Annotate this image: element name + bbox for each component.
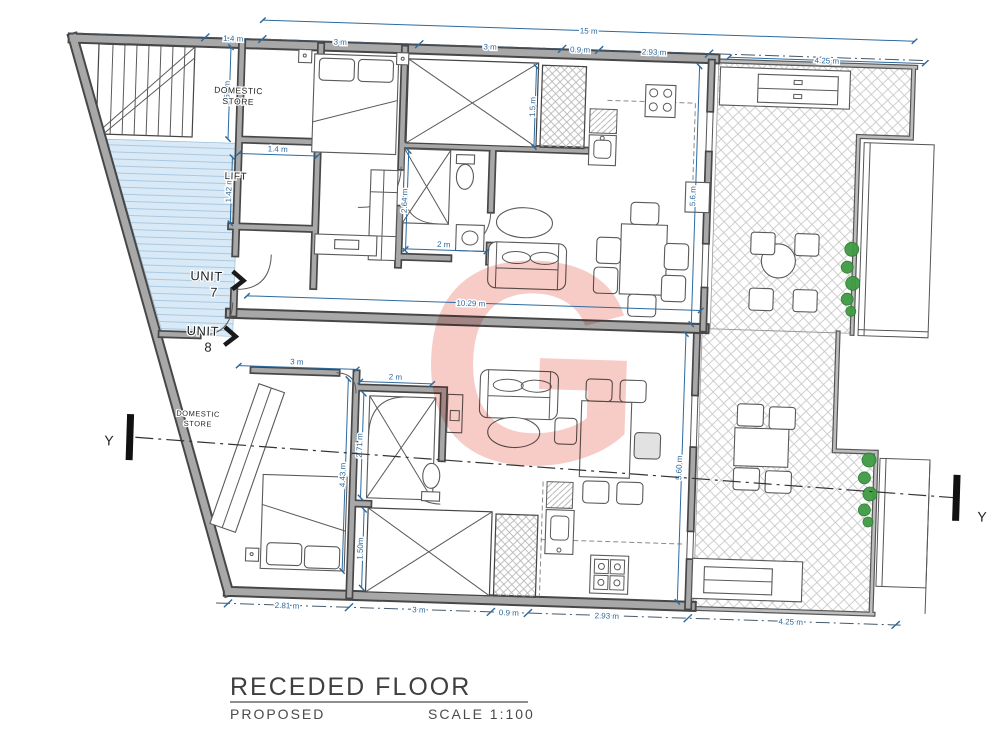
label-unit7-number: 7	[210, 285, 218, 300]
dim-2-93m-top: 2.93 m	[642, 47, 667, 57]
label-domestic-store-u7-line2: STORE	[222, 96, 254, 107]
dim-bed2-depth: 4.43 m	[338, 462, 348, 487]
dim-u8-depth: 5.60 m	[674, 455, 684, 480]
label-unit8-number: 8	[204, 339, 212, 354]
section-marker-right: Y	[977, 509, 988, 525]
dim-bath1-width: 2 m	[437, 240, 451, 249]
dim-shaft-u7: 1.5 m	[528, 96, 538, 117]
label-unit8: UNIT	[186, 323, 219, 339]
label-unit7: UNIT	[190, 268, 223, 284]
dim-3m-bottom: 3 m	[412, 605, 426, 614]
dim-shaft-u8: 1.50m	[356, 537, 366, 560]
drawing-title: RECEDED FLOOR	[230, 673, 471, 701]
floor-plan-svg: G 15 m 1.4 m 3 m 3 m 0.9 m 2.93 m 4.25 m	[0, 0, 1000, 750]
dim-living2-width: 2 m	[389, 372, 403, 381]
label-domestic-store-u7-line1: DOMESTIC	[214, 85, 263, 97]
dim-2-93m-bottom: 2.93 m	[594, 611, 619, 621]
dim-bath1-depth: 2.64 m	[400, 188, 410, 213]
dim-4-25m-bottom: 4.25 m	[778, 617, 803, 627]
plan-group: G 15 m 1.4 m 3 m 3 m 0.9 m 2.93 m 4.25 m	[51, 10, 1000, 633]
dim-lift-width: 1.4 m	[268, 144, 289, 154]
dim-3m-top-b: 3 m	[483, 42, 497, 51]
dim-party-wall: 10.29 m	[456, 299, 486, 309]
label-domestic-store-u8-line1: DOMESTIC	[176, 409, 220, 419]
dim-3m-top-a: 3 m	[333, 37, 347, 46]
staircase	[96, 44, 195, 137]
title-block: RECEDED FLOOR PROPOSED SCALE 1:100	[230, 673, 535, 722]
common-corridor	[101, 139, 239, 336]
dim-15m: 15 m	[580, 26, 598, 36]
floor-plan-page: G 15 m 1.4 m 3 m 3 m 0.9 m 2.93 m 4.25 m	[0, 0, 1000, 750]
dim-u7-depth: 5.6 m	[688, 186, 698, 207]
drawing-scale: SCALE 1:100	[428, 706, 535, 722]
dim-0-9m-top: 0.9 m	[570, 45, 591, 55]
label-lift: LIFT	[224, 171, 247, 183]
dim-4-25m-top: 4.25 m	[814, 56, 839, 66]
dim-2-81m: 2.81 m	[275, 601, 300, 611]
drawing-status: PROPOSED	[230, 706, 325, 722]
section-marker-left: Y	[104, 432, 115, 448]
dim-1-4m: 1.4 m	[223, 34, 244, 44]
label-domestic-store-u8-line2: STORE	[184, 419, 212, 429]
dim-bed2-width: 3 m	[290, 357, 304, 366]
dim-0-9m-bottom: 0.9 m	[499, 608, 520, 618]
